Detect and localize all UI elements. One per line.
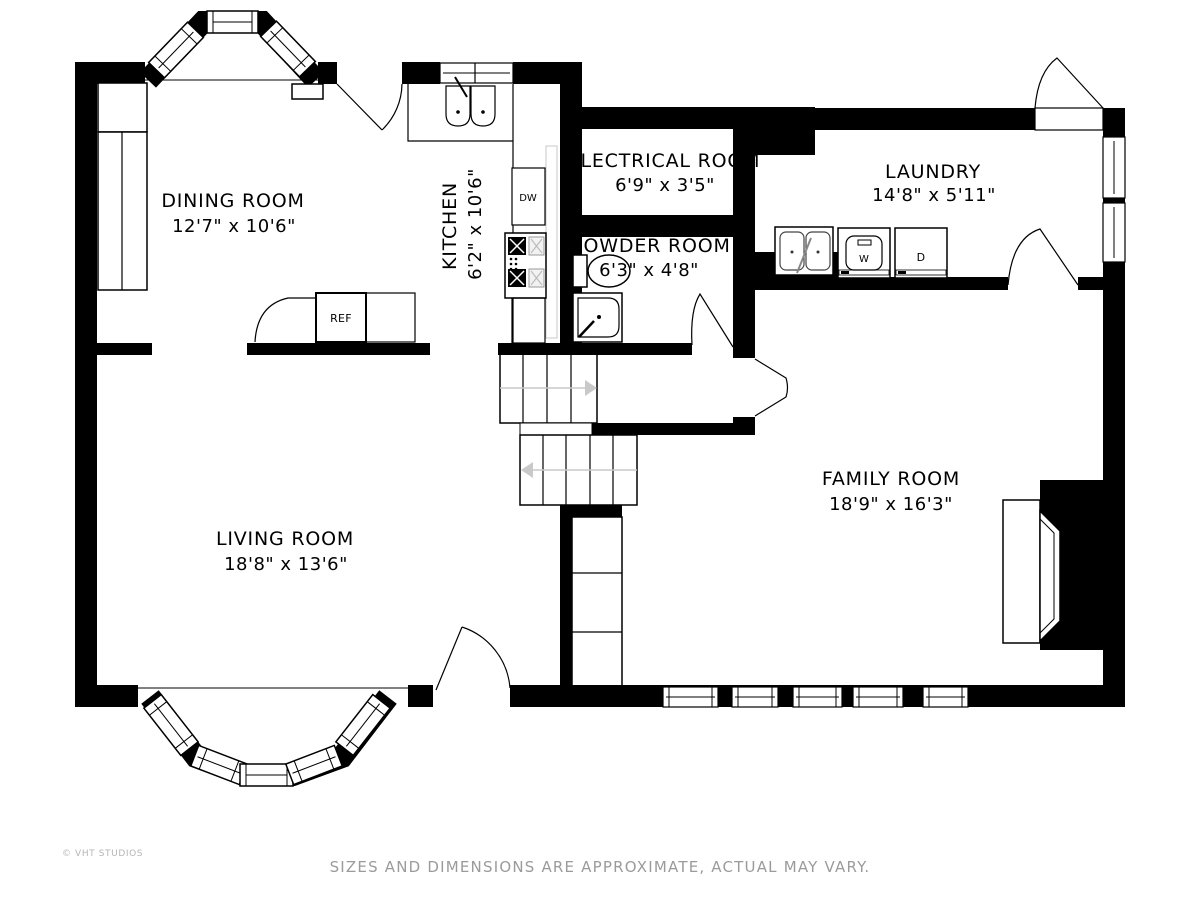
dishwasher-icon: DW: [512, 168, 545, 225]
stove-icon: [505, 233, 546, 298]
laundry-interior-door-icon: [1008, 229, 1078, 285]
room-name: POWDER ROOM: [571, 235, 730, 257]
room-label-kitchen: KITCHEN 6'2" x 10'6": [439, 168, 486, 280]
living-bay-window: [144, 695, 390, 786]
dining-builtin-cabinet: [98, 83, 147, 290]
room-dims: 6'9" x 3'5": [615, 175, 715, 196]
living-room-exterior-door-icon: [436, 627, 510, 690]
dryer-label: D: [917, 251, 926, 264]
dryer-icon: D: [895, 228, 947, 278]
refrigerator-icon: REF: [255, 293, 415, 342]
stairs-down-arrow-icon: [521, 462, 533, 478]
room-name: FAMILY ROOM: [822, 468, 960, 490]
disclaimer-text: SIZES AND DIMENSIONS ARE APPROXIMATE, AC…: [330, 858, 871, 876]
dishwasher-label: DW: [519, 193, 537, 204]
room-name: LAUNDRY: [885, 161, 981, 183]
room-name: KITCHEN: [439, 182, 461, 270]
fireplace-icon: [1003, 500, 1060, 643]
room-dims: 18'9" x 16'3": [829, 494, 953, 515]
room-name: ELECTRICAL ROOM: [568, 150, 761, 172]
room-name: LIVING ROOM: [216, 528, 354, 550]
room-dims: 6'3" x 4'8": [599, 260, 699, 281]
laundry-fixtures: W D: [775, 227, 947, 278]
stairs-upper: [500, 353, 597, 423]
kitchen-windows: [440, 63, 513, 83]
copyright-watermark: © VHT STUDIOS: [62, 849, 143, 859]
room-dims: 6'2" x 10'6": [465, 168, 486, 280]
room-dims: 14'8" x 5'11": [872, 185, 996, 206]
room-dims: 18'8" x 13'6": [224, 554, 348, 575]
room-label-electrical: ELECTRICAL ROOM 6'9" x 3'5": [568, 150, 761, 196]
stairs-lower: [520, 435, 637, 505]
family-room-hall-door-icon: [755, 359, 788, 416]
wall-nook: [292, 84, 323, 99]
utility-sink-icon: [775, 227, 833, 275]
laundry-exterior-door-icon: [1035, 58, 1103, 130]
under-stair-closet: [572, 517, 622, 690]
stair-landing: [520, 423, 592, 435]
room-label-dining: DINING ROOM 12'7" x 10'6": [161, 190, 304, 237]
powder-sink-icon: [573, 293, 622, 342]
room-name: DINING ROOM: [161, 190, 304, 212]
room-label-living: LIVING ROOM 18'8" x 13'6": [216, 528, 354, 575]
washer-label: W: [859, 254, 869, 265]
room-label-family: FAMILY ROOM 18'9" x 16'3": [822, 468, 960, 515]
room-dims: 12'7" x 10'6": [172, 216, 296, 237]
powder-room-door-icon: [692, 294, 733, 347]
refrigerator-label: REF: [330, 312, 352, 325]
room-label-laundry: LAUNDRY 14'8" x 5'11": [872, 161, 996, 206]
stairs-up-arrow-icon: [585, 380, 597, 396]
washer-icon: W: [838, 228, 890, 278]
kitchen-sink-icon: [446, 77, 495, 126]
floor-plan-canvas: DW REF: [0, 0, 1200, 900]
kitchen-entry-door-icon: [337, 84, 402, 130]
